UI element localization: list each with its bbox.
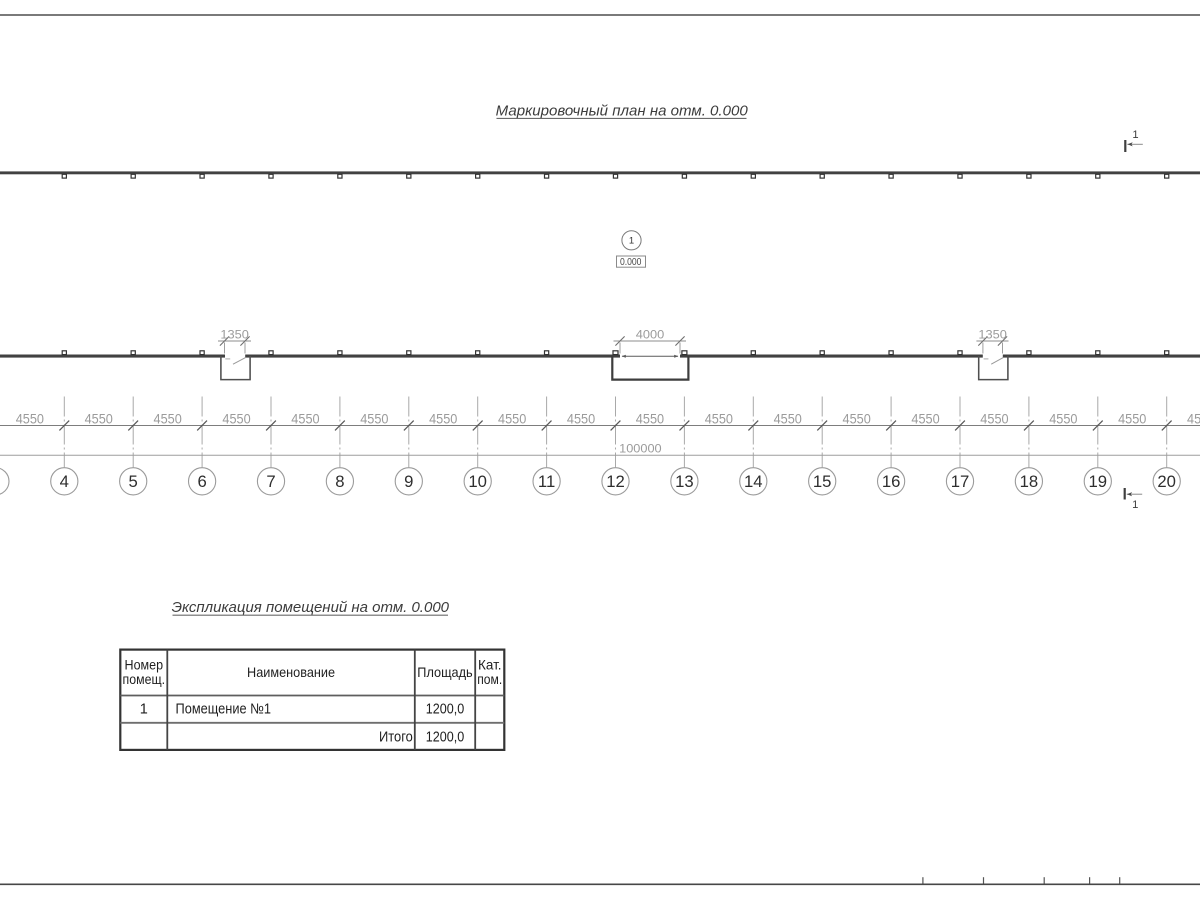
svg-text:8: 8 — [335, 472, 344, 491]
svg-text:4550: 4550 — [1118, 411, 1146, 426]
svg-text:1: 1 — [1132, 129, 1138, 141]
svg-text:12: 12 — [606, 472, 625, 491]
svg-text:19: 19 — [1089, 472, 1108, 491]
svg-text:4550: 4550 — [1049, 411, 1077, 426]
svg-text:4550: 4550 — [705, 411, 733, 426]
svg-text:5: 5 — [129, 472, 138, 491]
svg-text:9: 9 — [404, 472, 413, 491]
svg-text:1350: 1350 — [978, 327, 1007, 341]
svg-text:4550: 4550 — [154, 411, 182, 426]
svg-text:4550: 4550 — [291, 411, 319, 426]
svg-text:1350: 1350 — [220, 327, 249, 341]
svg-text:1: 1 — [629, 236, 634, 247]
svg-text:помещ.: помещ. — [123, 671, 166, 687]
svg-text:4550: 4550 — [980, 411, 1008, 426]
svg-text:0.000: 0.000 — [620, 257, 642, 268]
svg-text:4550: 4550 — [567, 411, 595, 426]
svg-text:Маркировочный план на отм. 0.0: Маркировочный план на отм. 0.000 — [496, 102, 749, 119]
svg-text:4: 4 — [60, 472, 69, 491]
svg-text:4550: 4550 — [1187, 411, 1200, 426]
svg-text:11: 11 — [538, 472, 555, 491]
svg-text:4550: 4550 — [636, 411, 664, 426]
svg-text:10: 10 — [468, 472, 487, 491]
svg-text:4550: 4550 — [498, 411, 526, 426]
svg-text:4550: 4550 — [774, 411, 802, 426]
svg-text:6: 6 — [197, 472, 206, 491]
svg-text:7: 7 — [266, 472, 275, 491]
svg-text:4550: 4550 — [429, 411, 457, 426]
svg-text:4550: 4550 — [911, 411, 939, 426]
svg-text:4550: 4550 — [360, 411, 388, 426]
svg-text:пом.: пом. — [477, 671, 502, 687]
svg-text:4550: 4550 — [85, 411, 113, 426]
svg-text:4000: 4000 — [636, 327, 665, 341]
svg-text:13: 13 — [675, 472, 694, 491]
svg-text:1: 1 — [140, 702, 148, 718]
svg-text:1200,0: 1200,0 — [426, 702, 465, 718]
svg-text:15: 15 — [813, 472, 832, 491]
svg-text:Итого: Итого — [379, 729, 413, 745]
svg-text:100000: 100000 — [619, 442, 662, 456]
svg-text:Площадь: Площадь — [417, 664, 472, 680]
svg-text:4550: 4550 — [843, 411, 871, 426]
svg-text:18: 18 — [1020, 472, 1039, 491]
svg-text:4550: 4550 — [16, 411, 44, 426]
svg-text:Наименование: Наименование — [247, 664, 335, 680]
svg-text:17: 17 — [951, 472, 970, 491]
svg-text:4550: 4550 — [222, 411, 250, 426]
svg-text:Помещение №1: Помещение №1 — [176, 702, 272, 718]
svg-text:14: 14 — [744, 472, 763, 491]
svg-text:Экспликация помещений на отм.: Экспликация помещений на отм. 0.000 — [172, 599, 450, 616]
svg-text:16: 16 — [882, 472, 901, 491]
svg-text:20: 20 — [1157, 472, 1176, 491]
svg-text:1200,0: 1200,0 — [426, 729, 465, 745]
svg-text:1: 1 — [1132, 499, 1138, 511]
